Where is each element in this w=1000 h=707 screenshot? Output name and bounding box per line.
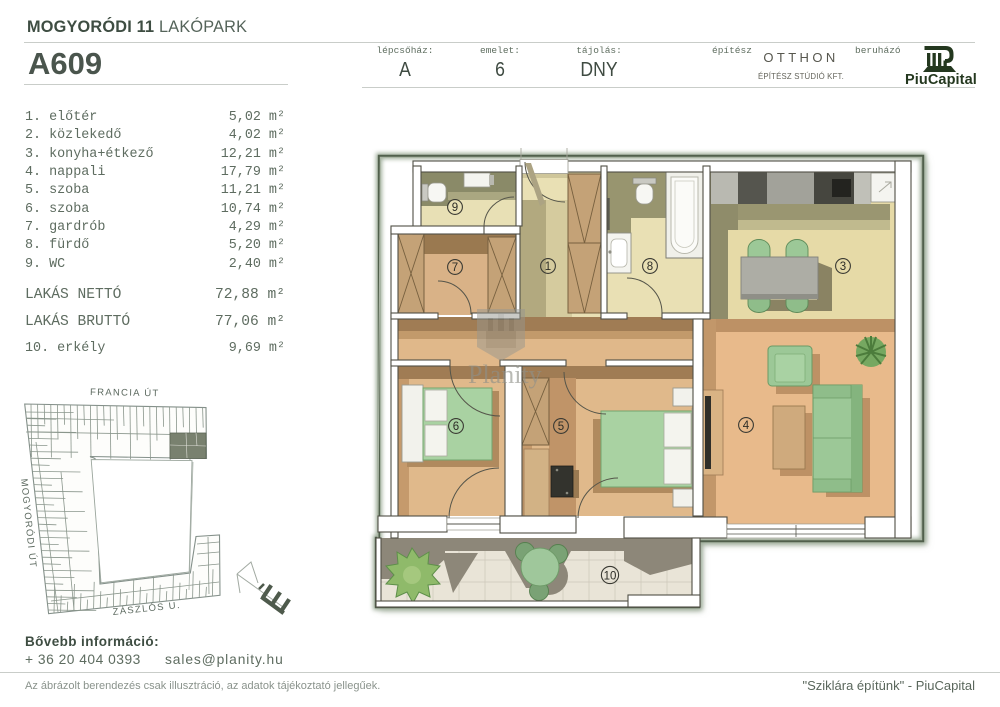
svg-text:9: 9 — [452, 202, 458, 214]
svg-text:7: 7 — [452, 262, 458, 274]
svg-text:6: 6 — [453, 421, 459, 433]
svg-text:4: 4 — [743, 420, 750, 432]
svg-text:8: 8 — [647, 261, 653, 273]
svg-text:1: 1 — [545, 261, 551, 273]
svg-text:Planity: Planity — [468, 360, 542, 389]
svg-text:3: 3 — [840, 261, 846, 273]
svg-text:5: 5 — [558, 421, 564, 433]
svg-text:10: 10 — [604, 570, 617, 582]
svg-text:FRANCIA ÚT: FRANCIA ÚT — [90, 387, 160, 399]
